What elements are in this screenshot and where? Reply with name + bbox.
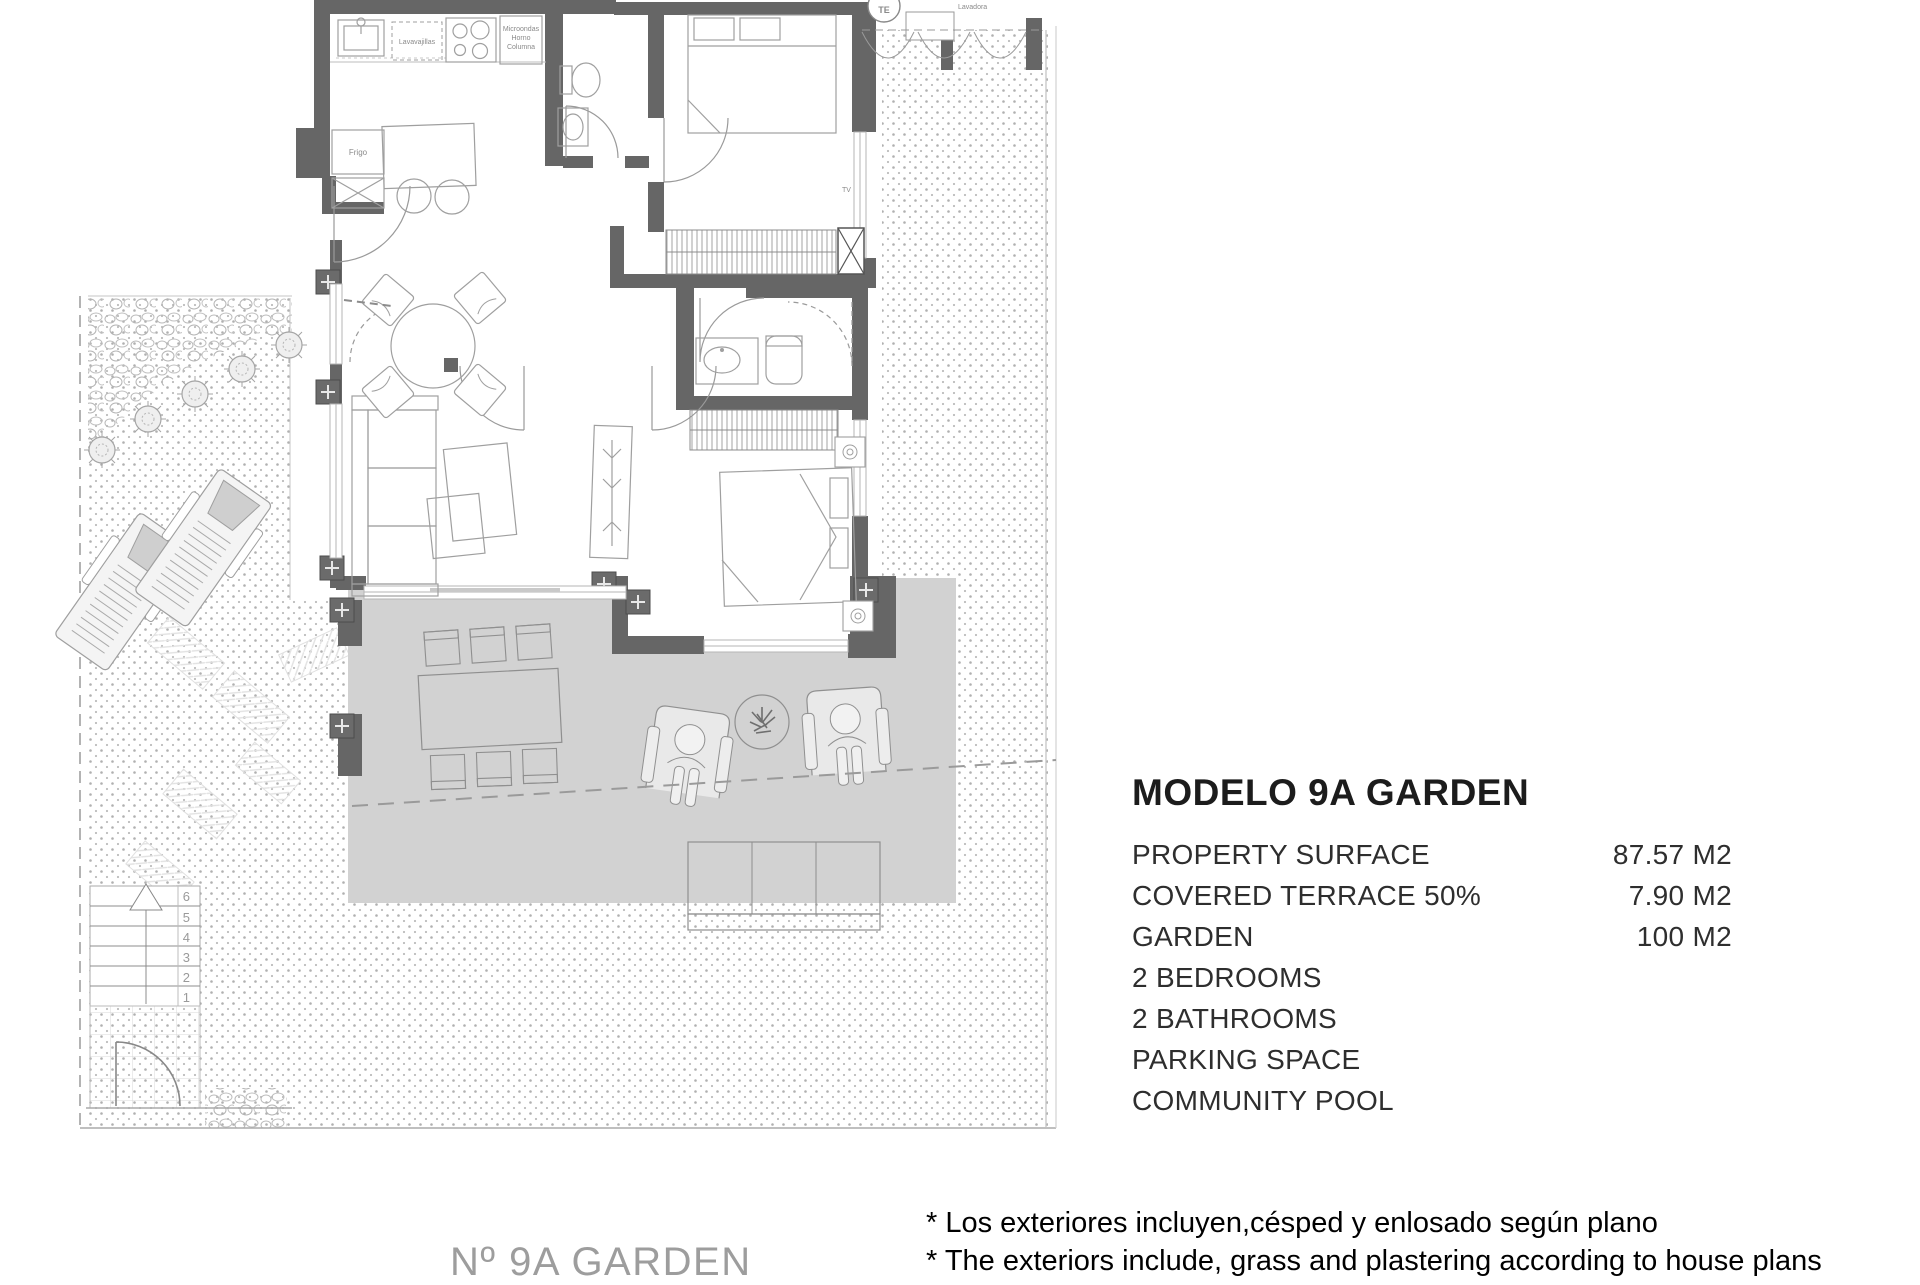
- garden-bottom: [348, 903, 1048, 1128]
- svg-text:6: 6: [183, 889, 190, 904]
- bedroom2-window: [704, 640, 848, 652]
- living-window: [330, 404, 342, 558]
- nightstand-1: [835, 437, 865, 467]
- footnote-es: * Los exteriores incluyen,césped y enlos…: [926, 1204, 1822, 1242]
- wardrobe-2: [690, 410, 838, 450]
- washer-label: Lavadora: [958, 4, 987, 11]
- spec-value: 100 M2: [1637, 916, 1732, 957]
- spec-value: 87.57 M2: [1613, 834, 1732, 875]
- nightstand-2: [843, 601, 873, 631]
- info-panel: MODELO 9A GARDEN PROPERTY SURFACE 87.57 …: [1132, 772, 1732, 1121]
- spec-label: COVERED TERRACE 50%: [1132, 875, 1481, 916]
- spec-label: PROPERTY SURFACE: [1132, 834, 1430, 875]
- bedroom2-side-window: [854, 420, 866, 516]
- dishwasher-label: Lavavajillas: [399, 39, 436, 46]
- fridge-label: Frigo: [349, 148, 368, 157]
- terrace-sliding-door: [364, 586, 626, 599]
- feature-bedrooms: 2 BEDROOMS: [1132, 957, 1732, 998]
- svg-text:5: 5: [183, 910, 190, 925]
- spec-value: 7.90 M2: [1629, 875, 1732, 916]
- stair-landing: [90, 1006, 200, 1108]
- feature-bathrooms: 2 BATHROOMS: [1132, 998, 1732, 1039]
- spec-row-property-surface: PROPERTY SURFACE 87.57 M2: [1132, 834, 1732, 875]
- oven-label-1: Microondas: [503, 26, 540, 33]
- spec-row-covered-terrace: COVERED TERRACE 50% 7.90 M2: [1132, 875, 1732, 916]
- footnotes: * Los exteriores incluyen,césped y enlos…: [926, 1204, 1822, 1280]
- electrical-panel-label: TE: [878, 5, 890, 15]
- oven-label-2: Horno: [511, 35, 530, 42]
- feature-parking: PARKING SPACE: [1132, 1039, 1732, 1080]
- spec-row-garden: GARDEN 100 M2: [1132, 916, 1732, 957]
- spec-label: GARDEN: [1132, 916, 1254, 957]
- footnote-en: * The exteriors include, grass and plast…: [926, 1242, 1822, 1280]
- wardrobe-1: [666, 230, 836, 274]
- oven-label-3: Columna: [507, 44, 535, 51]
- svg-text:1: 1: [183, 990, 190, 1005]
- svg-text:4: 4: [183, 930, 190, 945]
- dining-window: [330, 284, 342, 364]
- svg-text:3: 3: [183, 950, 190, 965]
- tv-label: TV: [842, 187, 851, 194]
- model-title: MODELO 9A GARDEN: [1132, 772, 1732, 814]
- shaft: [838, 228, 864, 274]
- unit-label: Nº 9A GARDEN: [450, 1240, 752, 1285]
- svg-text:2: 2: [183, 970, 190, 985]
- feature-pool: COMMUNITY POOL: [1132, 1080, 1732, 1121]
